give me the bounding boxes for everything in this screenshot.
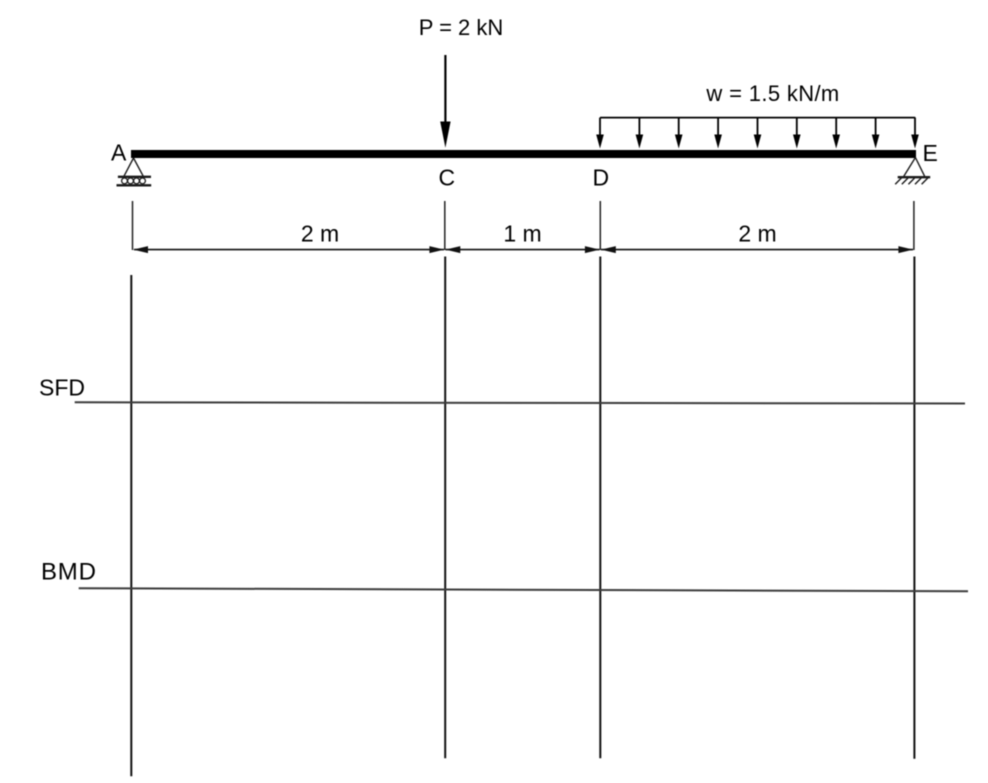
svg-text:w = 1.5 kN/m: w = 1.5 kN/m [705, 81, 839, 106]
svg-text:BMD: BMD [41, 559, 97, 586]
svg-text:D: D [593, 165, 610, 191]
svg-text:2 m: 2 m [301, 221, 339, 247]
svg-text:SFD: SFD [39, 375, 85, 401]
svg-text:C: C [439, 165, 456, 191]
svg-text:P = 2 kN: P = 2 kN [419, 15, 504, 40]
svg-text:A: A [111, 140, 127, 166]
svg-text:2 m: 2 m [738, 221, 776, 247]
svg-text:E: E [923, 140, 938, 166]
svg-text:1 m: 1 m [503, 221, 541, 247]
